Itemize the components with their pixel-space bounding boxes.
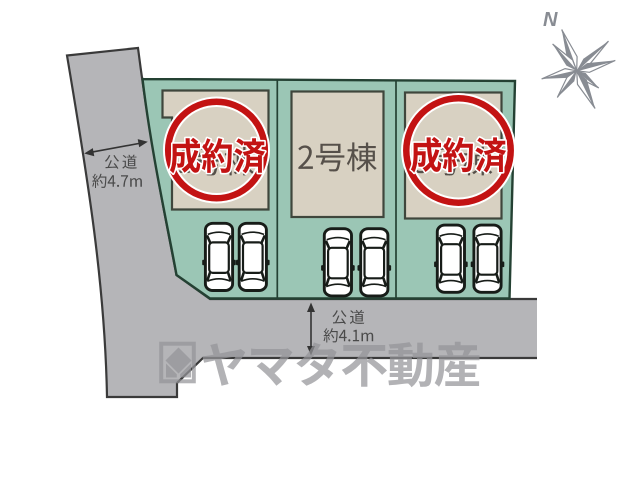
svg-text:N: N: [543, 9, 558, 31]
